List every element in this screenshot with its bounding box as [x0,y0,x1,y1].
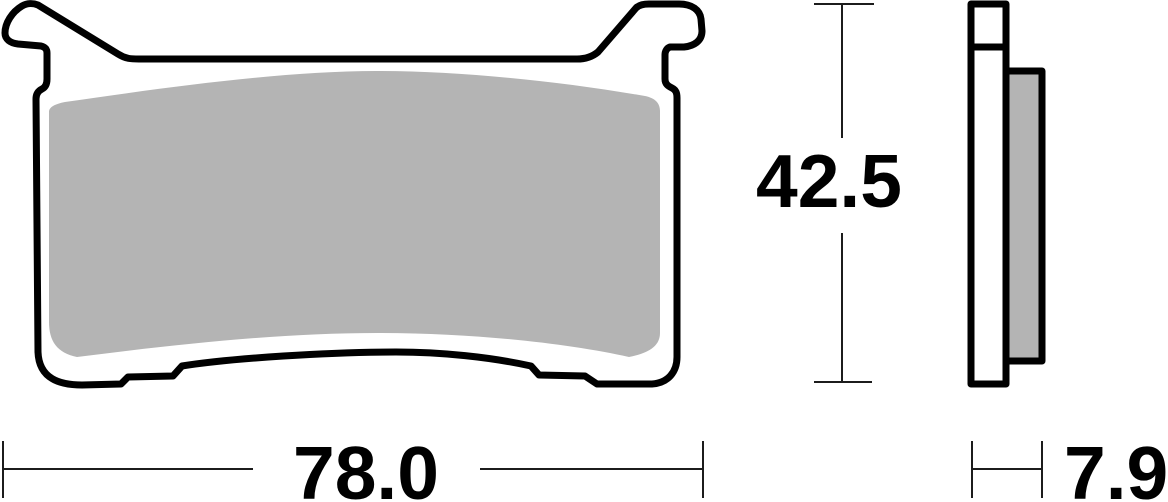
side-view [968,4,1042,384]
height-dimension-label: 42.5 [756,139,902,223]
thickness-dimension-line [972,441,1042,498]
height-dimension: 42.5 [756,4,902,382]
front-view [5,4,702,385]
front-view-friction-material [49,71,660,357]
side-view-backing-plate [971,4,1006,384]
drawing-canvas: 78.0 42.5 7.9 [0,0,1168,502]
width-dimension-label: 78.0 [293,431,439,502]
thickness-dimension-label: 7.9 [1064,431,1168,502]
brake-pad-diagram: 78.0 42.5 7.9 [0,0,1168,502]
thickness-dimension: 7.9 [972,431,1168,502]
width-dimension: 78.0 [3,431,703,502]
side-view-friction-material [1006,71,1042,361]
